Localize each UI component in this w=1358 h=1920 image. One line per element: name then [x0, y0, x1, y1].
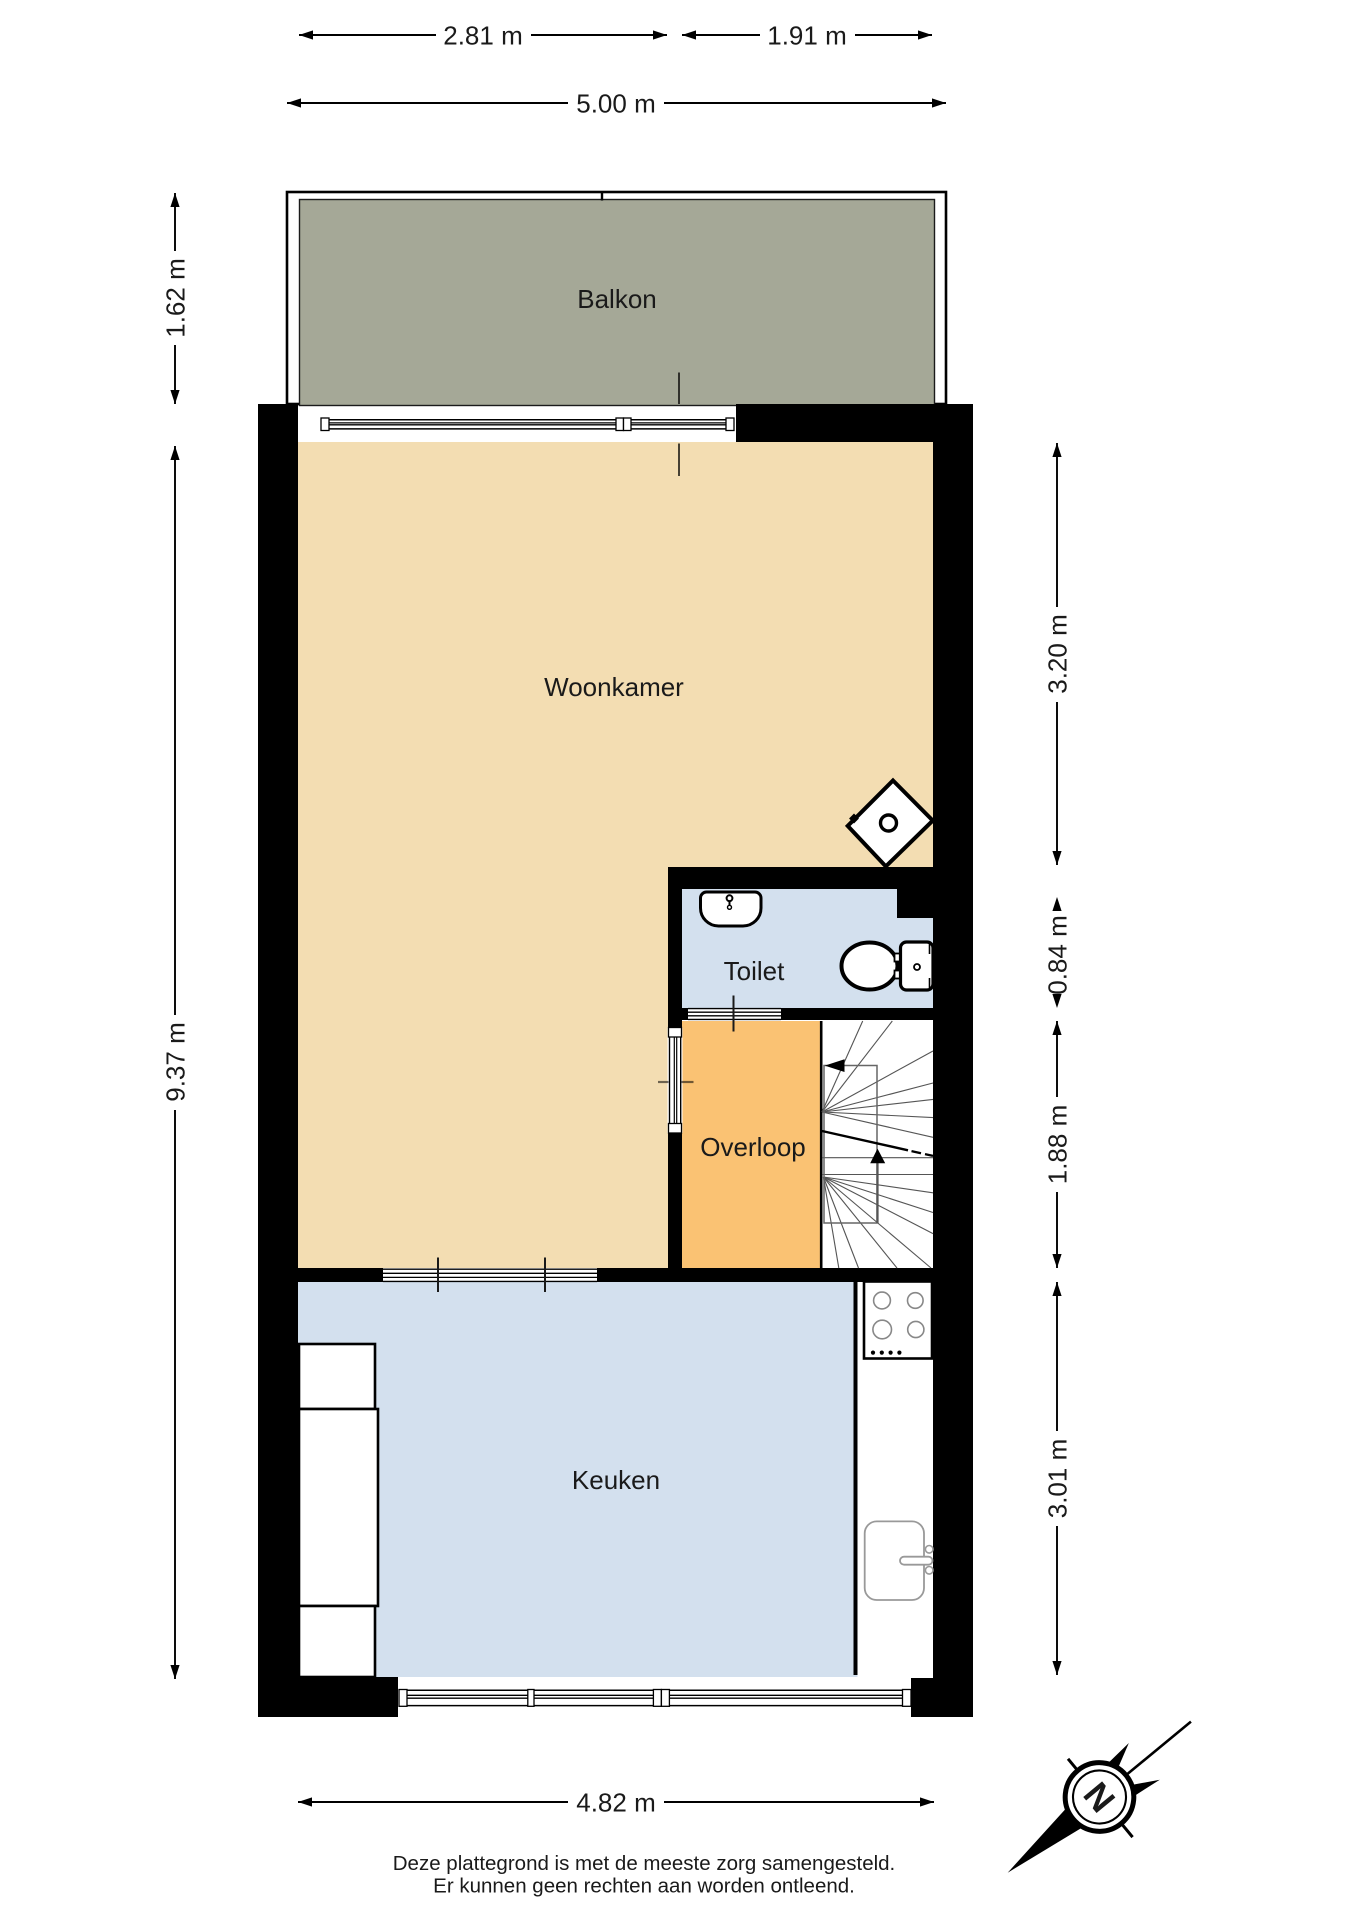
svg-text:Toilet: Toilet	[724, 956, 785, 986]
svg-text:0.84 m: 0.84 m	[1042, 915, 1072, 995]
svg-text:Er kunnen geen rechten aan wor: Er kunnen geen rechten aan worden ontlee…	[433, 1875, 855, 1898]
svg-text:1.88 m: 1.88 m	[1042, 1105, 1072, 1185]
svg-text:2.81 m: 2.81 m	[443, 20, 523, 50]
svg-text:1.91 m: 1.91 m	[767, 20, 847, 50]
svg-text:Keuken: Keuken	[572, 1465, 660, 1495]
svg-text:5.00 m: 5.00 m	[576, 88, 656, 118]
svg-text:3.20 m: 3.20 m	[1042, 614, 1072, 694]
svg-text:Balkon: Balkon	[577, 284, 657, 314]
svg-text:4.82 m: 4.82 m	[576, 1787, 656, 1817]
svg-text:Deze plattegrond is met de mee: Deze plattegrond is met de meeste zorg s…	[393, 1852, 896, 1875]
svg-text:1.62 m: 1.62 m	[160, 258, 190, 338]
svg-text:Woonkamer: Woonkamer	[544, 672, 684, 702]
svg-text:9.37 m: 9.37 m	[160, 1022, 190, 1102]
svg-text:Overloop: Overloop	[700, 1132, 806, 1162]
svg-text:3.01 m: 3.01 m	[1042, 1439, 1072, 1519]
